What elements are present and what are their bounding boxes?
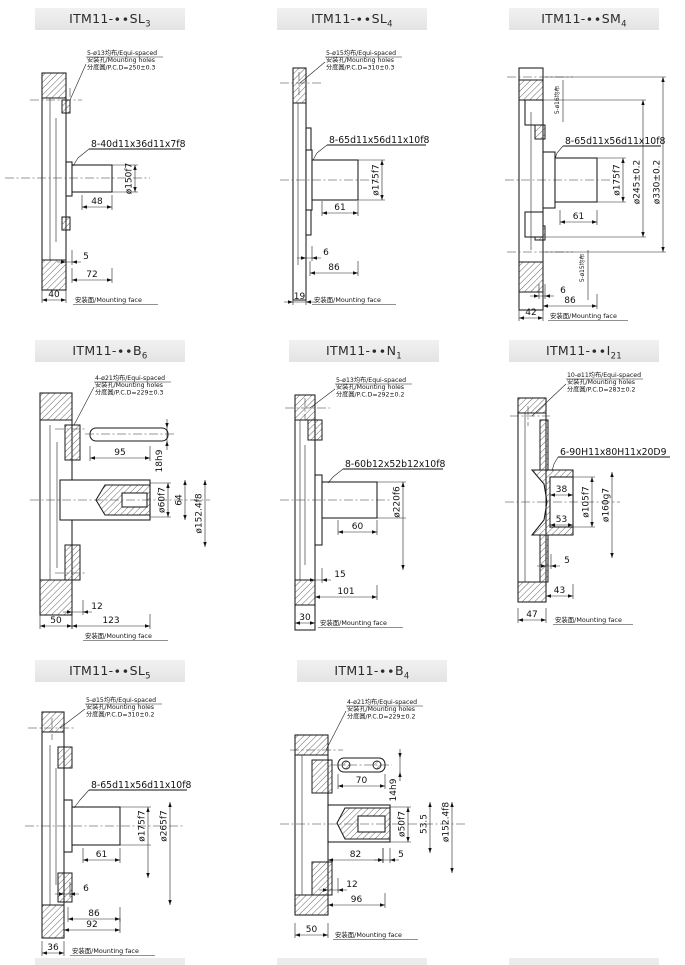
dim-label: 82 [350, 850, 361, 860]
dim-label: 6 [83, 884, 89, 894]
hole-note-line: 分度圆/P.C.D=229±0.2 [347, 712, 416, 720]
hole-note-line: 分度圆/P.C.D=310±0.2 [86, 710, 155, 718]
diameter-label: 64 [175, 494, 185, 506]
dim-label: 5 [398, 850, 404, 860]
hole-note-line: 分度圆/P.C.D=250±0.3 [87, 63, 156, 71]
mounting-face-label: 安装面/Mounting face [72, 946, 139, 955]
dim-label: 50 [306, 925, 318, 935]
diameter-label: 18h9 [155, 449, 165, 472]
drawing-n1: 5-ø13均布/Equi-spaced安装孔/Mounting holes分度圆… [240, 330, 470, 660]
drawing-sheet: ITM11-∙∙SL35-ø13均布/Equi-spaced安装孔/Mounti… [0, 0, 685, 965]
dim-label: 30 [299, 613, 311, 623]
hole-note-line: 5-ø15均布/Equi-spaced [326, 49, 396, 57]
diameter-label: 53.5 [420, 814, 430, 834]
dim-label: 6 [323, 248, 329, 258]
diameter-label: 14h9 [389, 778, 399, 801]
dim-label: 5 [564, 556, 570, 566]
hole-note-line: 10-ø11均布/Equi-spaced [567, 371, 641, 379]
mounting-face-label: 安装面/Mounting face [550, 311, 617, 320]
dim-label: 48 [91, 197, 103, 207]
dim-label: 53 [556, 515, 567, 525]
dim-label: 38 [556, 485, 568, 495]
next-row-titlebar-cropped [277, 958, 427, 965]
drawing-sl3: 5-ø13均布/Equi-spaced安装孔/Mounting holes分度圆… [0, 0, 235, 332]
mounting-face-label: 安装面/Mounting face [320, 618, 387, 627]
dim-label: 96 [351, 895, 363, 905]
spline-spec-label: 8-60b12x52b12x10f8 [345, 459, 445, 470]
hole-note-line: 分度圆/P.C.D=292±0.2 [336, 390, 405, 398]
dim-label: 92 [86, 920, 97, 930]
mounting-face-label: 安装面/Mounting face [555, 615, 622, 624]
diameter-label: ø150f7 [125, 163, 135, 195]
drawing-b6: 4-ø21均布/Equi-spaced安装孔/Mounting holes分度圆… [0, 330, 240, 660]
next-row-titlebar-cropped [509, 958, 659, 965]
diameter-label: ø245±0.2 [633, 160, 643, 205]
dim-label: 61 [334, 203, 345, 213]
dim-label: 36 [47, 943, 59, 953]
hole-note-line: 4-ø21均布/Equi-spaced [347, 698, 417, 706]
hole-note-line: 分度圆/P.C.D=229±0.3 [95, 388, 164, 396]
drawing-sl5: 5-ø15均布/Equi-spaced安装孔/Mounting holes分度圆… [0, 650, 240, 965]
dim-label: 70 [356, 776, 368, 786]
dim-label: 6 [560, 286, 566, 296]
dim-label: 61 [573, 212, 584, 222]
spline-spec-label: 8-40d11x36d11x7f8 [91, 139, 186, 150]
spline-spec-label: 6-90H11x80H11x20D9 [560, 447, 667, 458]
spline-spec-label: 8-65d11x56d11x10f8 [329, 135, 429, 146]
diameter-label: ø160g7 [602, 488, 612, 522]
dim-label: 86 [88, 909, 100, 919]
dim-label: 19 [294, 292, 306, 302]
diameter-label: ø175f7 [138, 810, 148, 842]
hole-note-line: 安装孔/Mounting holes [336, 383, 404, 391]
dim-label: 42 [525, 308, 536, 318]
dim-label: 61 [96, 850, 107, 860]
hole-note-line: 5-ø13均布/Equi-spaced [87, 49, 157, 57]
hole-note-line: 安装孔/Mounting holes [87, 56, 155, 64]
dim-label: 47 [526, 610, 537, 620]
mounting-face-label: 安装面/Mounting face [85, 631, 152, 640]
mounting-face-label: 安装面/Mounting face [75, 295, 142, 304]
hole-note-line: 分度圆/P.C.D=283±0.2 [567, 385, 636, 393]
drawing-sm4: 5-ø16均布5-ø15均布8-65d11x56d11x10f8ø175f7ø2… [455, 0, 685, 335]
dim-label: 12 [91, 602, 102, 612]
dim-label: 123 [102, 616, 119, 626]
hole-note-line: 安装孔/Mounting holes [567, 378, 635, 386]
next-row-titlebar-cropped [35, 958, 185, 965]
dim-label: 86 [328, 263, 340, 273]
dim-label: 86 [564, 296, 576, 306]
diameter-label: ø220f6 [393, 486, 403, 518]
diameter-label: ø265f7 [160, 810, 170, 842]
mounting-face-label: 安装面/Mounting face [335, 930, 402, 939]
dim-label: 40 [48, 290, 60, 300]
diameter-label: ø175f7 [613, 164, 623, 196]
hole-note-line: 5-ø13均布/Equi-spaced [336, 376, 406, 384]
spline-spec-label: 8-65d11x56d11x10f8 [91, 780, 191, 791]
drawing-sl4: 5-ø15均布/Equi-spaced安装孔/Mounting holes分度圆… [230, 0, 465, 335]
dim-label: 15 [334, 570, 345, 580]
drawing-i21: 10-ø11均布/Equi-spaced安装孔/Mounting holes分度… [470, 330, 685, 662]
hole-note-line: 4-ø21均布/Equi-spaced [95, 374, 165, 382]
hole-note-vertical: 5-ø15均布 [578, 254, 586, 282]
dim-label: 5 [83, 252, 89, 262]
dim-label: 72 [86, 270, 97, 280]
dim-label: 43 [554, 586, 565, 596]
diameter-label: ø50f7 [398, 811, 408, 837]
spline-spec-label: 8-65d11x56d11x10f8 [565, 136, 665, 147]
dim-label: 60 [352, 522, 364, 532]
hole-note-line: 安装孔/Mounting holes [326, 56, 394, 64]
diameter-label: ø105f7 [582, 486, 592, 518]
dim-label: 95 [114, 448, 125, 458]
dim-label: 101 [337, 587, 354, 597]
diameter-label: ø60f7 [158, 487, 168, 513]
dim-label: 12 [346, 880, 357, 890]
dim-label: 50 [50, 616, 62, 626]
hole-note-line: 5-ø15均布/Equi-spaced [86, 696, 156, 704]
diameter-label: ø330±0.2 [653, 160, 663, 205]
hole-note-line: 安装孔/Mounting holes [347, 705, 415, 713]
hole-note-line: 分度圆/P.C.D=310±0.3 [326, 63, 395, 71]
mounting-face-label: 安装面/Mounting face [314, 295, 381, 304]
diameter-label: ø152.4f8 [195, 493, 205, 533]
hole-note-line: 安装孔/Mounting holes [95, 381, 163, 389]
drawing-b4: 4-ø21均布/Equi-spaced安装孔/Mounting holes分度圆… [240, 650, 485, 965]
diameter-label: ø175f7 [372, 164, 382, 196]
hole-note-line: 安装孔/Mounting holes [86, 703, 154, 711]
diameter-label: ø152.4f8 [442, 802, 452, 842]
